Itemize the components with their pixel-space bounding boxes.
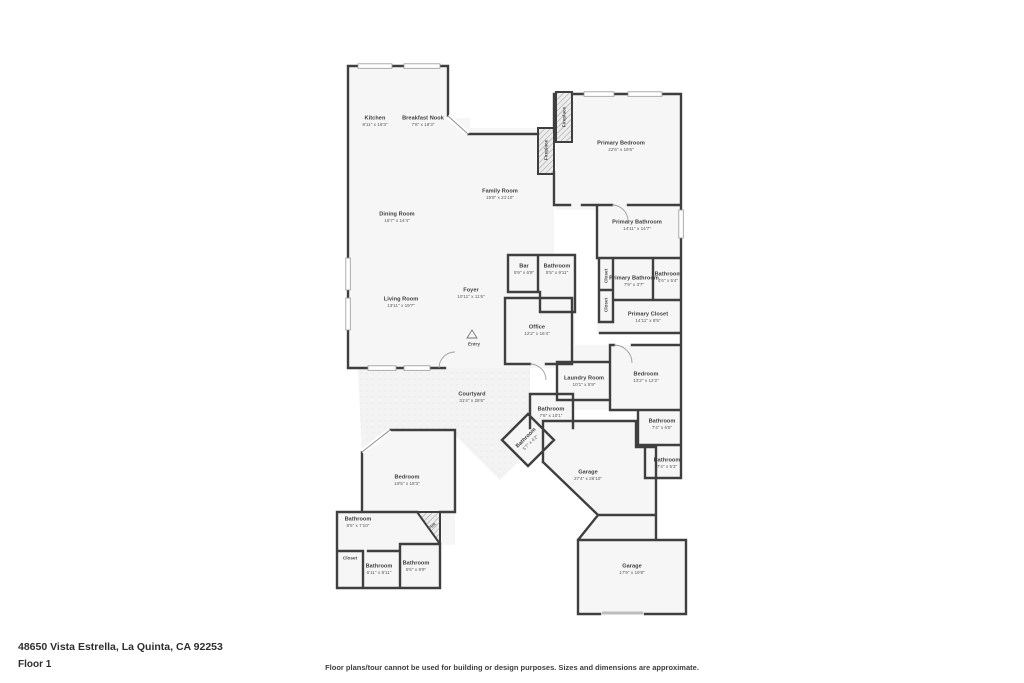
room-label-bar: Bar5'9" x 6'9" [514, 262, 534, 275]
room-label-primary-bedroom: Primary Bedroom22'6" x 19'6" [597, 139, 645, 152]
room-label-bathroom-small: Bathroom4'6" x 5'4" [655, 270, 682, 283]
room-label-family-room: Family Room19'8" x 21'10" [482, 187, 518, 200]
room-label-bedroom-bottom-left: Bedroom19'5" x 18'3" [394, 473, 420, 486]
room-label-breakfast-nook: Breakfast Nook7'8" x 19'3" [402, 114, 444, 127]
room-label-bathroom-right-2: Bathroom7'4" x 5'3" [654, 456, 681, 469]
room-label-courtyard: Courtyard31'4" x 28'6" [458, 390, 485, 403]
room-label-living-room: Living Room13'11" x 19'7" [384, 295, 418, 308]
room-label-garage-second: Garage17'9" x 19'8" [619, 562, 645, 575]
entry-label: Entry [468, 341, 480, 347]
room-label-primary-closet: Primary Closet14'11" x 8'5" [628, 310, 668, 323]
closet-label-1: Closet [603, 269, 609, 283]
room-label-office: Office12'2" x 16'4" [524, 323, 550, 336]
floorplan-drawing [0, 0, 1024, 683]
room-label-bathroom-cluster-mid: Bathroom6'11" x 8'11" [366, 562, 393, 575]
room-label-bathroom-cluster-top: Bathroom8'5" x 7'10" [345, 515, 372, 528]
room-label-bathroom-mid: Bathroom7'6" x 10'1" [538, 405, 565, 418]
floorplan-page: Kitchen8'11" x 19'3" Breakfast Nook7'8" … [0, 0, 1024, 683]
room-label-primary-bathroom: Primary Bathroom14'11" x 14'7" [612, 218, 662, 231]
closet-label-2: Closet [603, 298, 609, 312]
room-label-bathroom-cluster-right: Bathroom5'5" x 8'9" [403, 559, 430, 572]
room-label-bathroom-bar: Bathroom5'5" x 9'11" [544, 262, 571, 275]
room-label-bathroom-right-1: Bathroom7'4" x 6'5" [649, 417, 676, 430]
room-label-kitchen: Kitchen8'11" x 19'3" [362, 114, 387, 127]
address-text: 48650 Vista Estrella, La Quinta, CA 9225… [18, 641, 223, 653]
fireplace-label-2: Fireplace [561, 107, 567, 128]
room-label-foyer: Foyer10'11" x 11'6" [457, 286, 484, 299]
fireplace-label-1: Fireplace [543, 140, 549, 161]
room-label-bedroom-right: Bedroom13'2" x 12'2" [633, 370, 659, 383]
room-label-primary-bathroom-2: Primary Bathroom7'9" x 3'7" [609, 274, 659, 287]
room-label-dining-room: Dining Room16'7" x 14'4" [379, 210, 414, 223]
closet-label-3: Closet [343, 555, 357, 561]
disclaimer-text: Floor plans/tour cannot be used for buil… [0, 663, 1024, 672]
room-label-garage-main: Garage27'4" x 26'10" [574, 468, 602, 481]
room-label-laundry-room: Laundry Room10'1" x 5'9" [564, 374, 604, 387]
